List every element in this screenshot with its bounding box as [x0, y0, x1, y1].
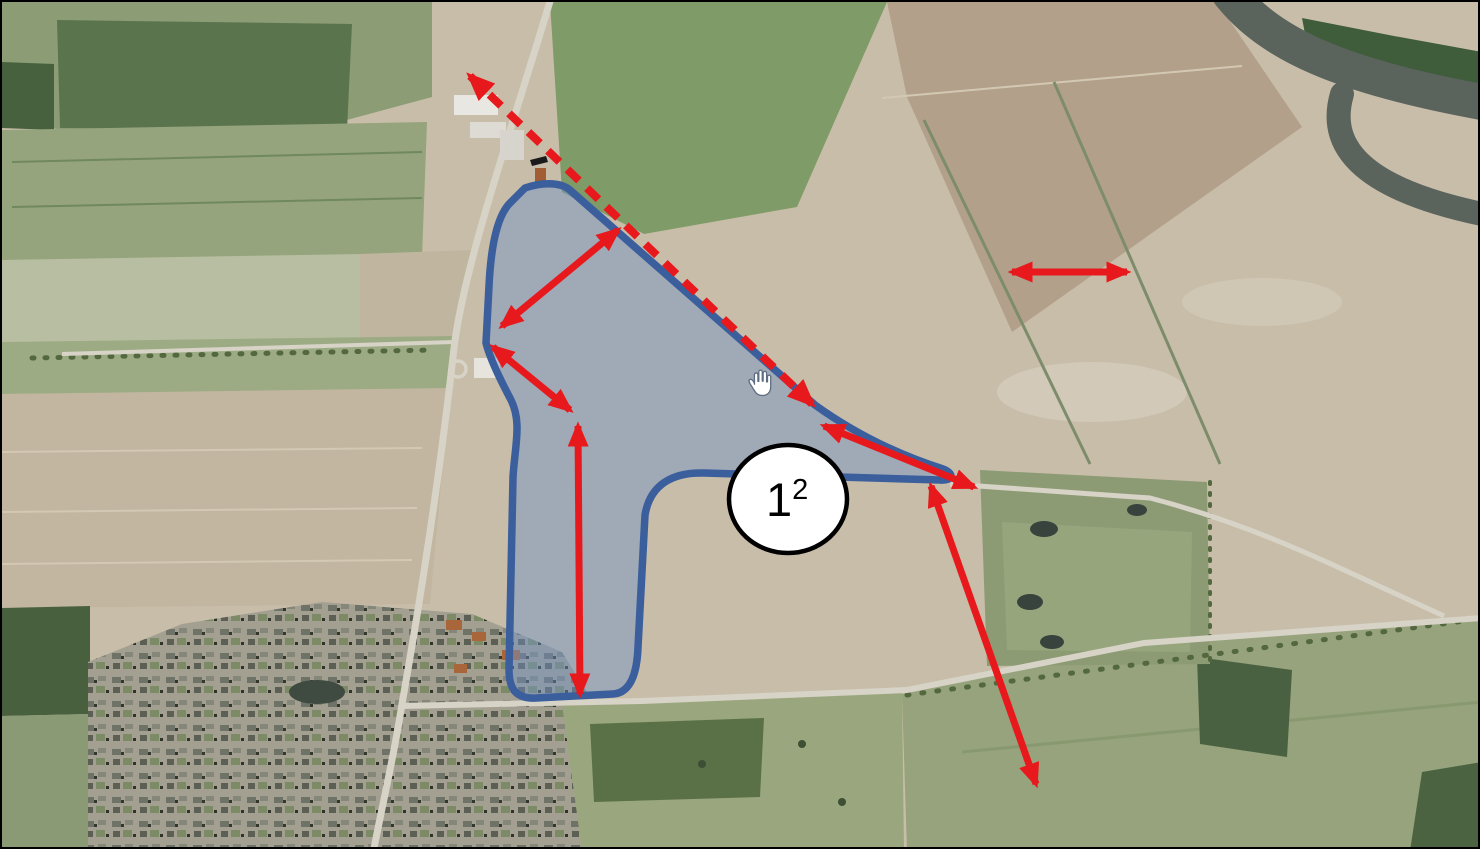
- label-superscript: 2: [792, 474, 808, 506]
- tree: [838, 798, 846, 806]
- woods-strip: [57, 20, 352, 130]
- nature-reserve-inner: [1002, 522, 1192, 652]
- village-pond: [289, 680, 345, 704]
- field: [2, 388, 450, 608]
- orange-roof: [454, 664, 467, 673]
- soil-streak: [1182, 278, 1342, 326]
- woods-block: [1197, 657, 1292, 757]
- pond: [1040, 635, 1064, 649]
- aerial-map-canvas[interactable]: 12: [2, 2, 1480, 849]
- pond: [1017, 594, 1043, 610]
- woods-block: [2, 606, 90, 716]
- orange-roof: [472, 632, 486, 641]
- field: [2, 714, 88, 849]
- length-arrow-vertical: [578, 426, 580, 694]
- field: [2, 254, 362, 342]
- field: [2, 122, 427, 260]
- label-base: 1: [766, 473, 792, 526]
- pond: [1127, 504, 1147, 516]
- orange-roof: [446, 620, 462, 630]
- aerial-map-view[interactable]: 12: [0, 0, 1480, 849]
- farm-building: [500, 130, 524, 160]
- pond: [1030, 521, 1058, 537]
- soil-streak: [997, 362, 1187, 422]
- area-label: 12: [729, 445, 847, 553]
- woods-block: [590, 718, 764, 802]
- tree: [698, 760, 706, 768]
- tree: [798, 740, 806, 748]
- woods-strip: [2, 62, 54, 130]
